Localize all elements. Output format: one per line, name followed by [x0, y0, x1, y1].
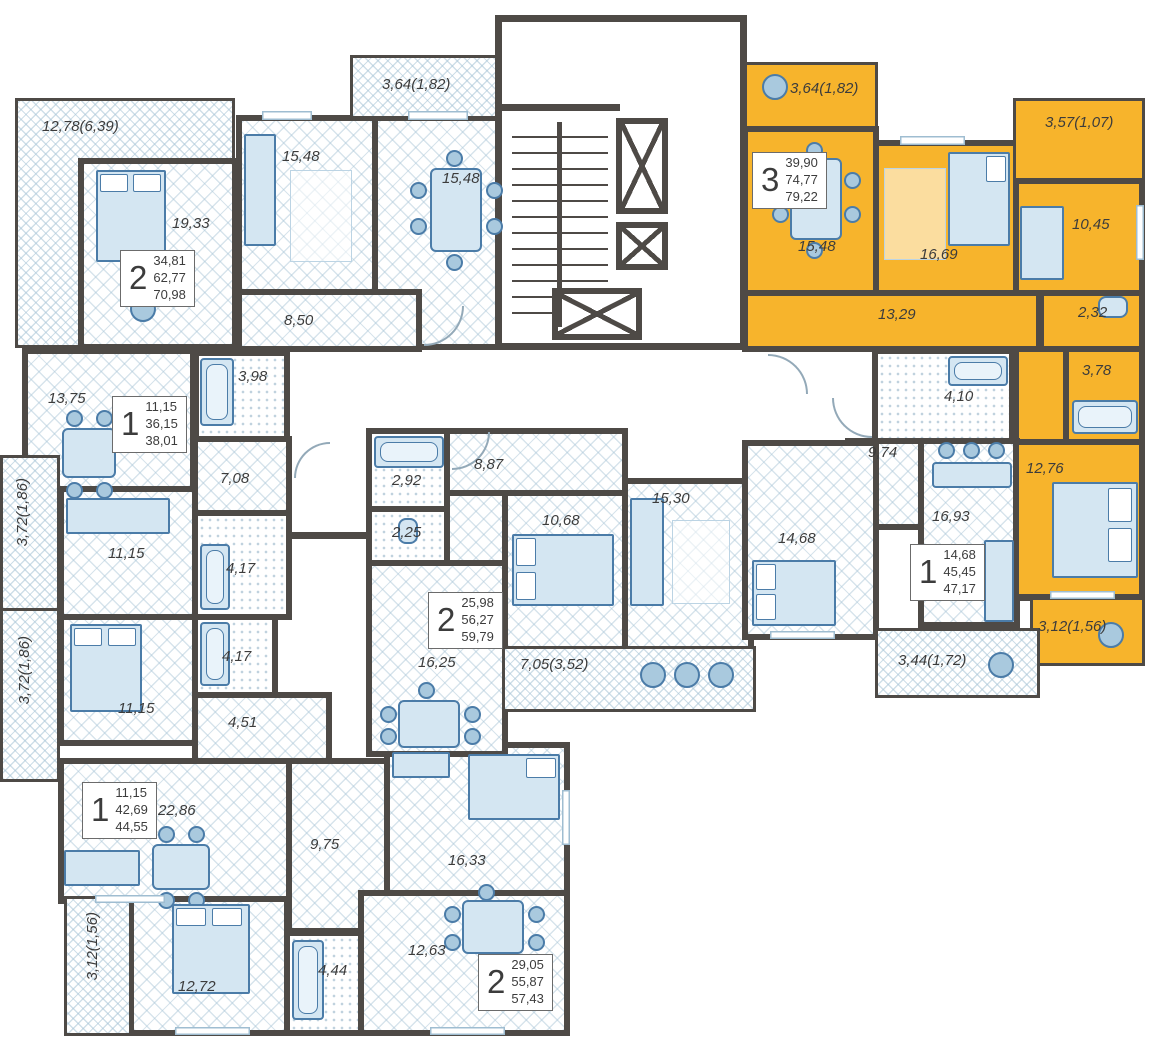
bathtub [292, 940, 324, 1020]
chair [410, 182, 427, 199]
elevator-shaft-1 [616, 118, 668, 214]
chair [418, 682, 435, 699]
room-label: 9,74 [868, 444, 897, 461]
room-b-balcony-right [1013, 98, 1145, 184]
window [562, 790, 570, 845]
stair-divider [557, 122, 562, 327]
rug [290, 170, 352, 262]
room-label: 4,17 [226, 560, 255, 577]
area-full: 47,17 [943, 581, 976, 598]
chair [844, 206, 861, 223]
room-label: 3,98 [238, 368, 267, 385]
room-label: 9,75 [310, 836, 339, 853]
room-label: 4,44 [318, 962, 347, 979]
room-label: 13,29 [878, 306, 916, 323]
window [175, 1027, 250, 1035]
room-label: 12,76 [1026, 460, 1064, 477]
area-total: 62,77 [153, 270, 186, 287]
apartment-tag-f: 2 25,98 56,27 59,79 [428, 592, 503, 649]
room-label: 19,33 [172, 215, 210, 232]
stool [938, 442, 955, 459]
sofa [630, 498, 664, 606]
room-label: 4,10 [944, 388, 973, 405]
room-label: 3,64(1,82) [790, 80, 858, 97]
room-label: 15,48 [442, 170, 480, 187]
area-total: 45,45 [943, 564, 976, 581]
window [408, 111, 468, 120]
pillow [1108, 488, 1132, 522]
wall-segment [502, 104, 620, 111]
room-label: 2,25 [392, 524, 421, 541]
sofa [244, 134, 276, 246]
room-label: 15,30 [652, 490, 690, 507]
area-full: 44,55 [115, 819, 148, 836]
area-full: 59,79 [461, 629, 494, 646]
window [430, 1027, 505, 1035]
chair [844, 172, 861, 189]
apartment-tag-e: 2 29,05 55,87 57,43 [478, 954, 553, 1011]
apartment-tag-g: 1 14,68 45,45 47,17 [910, 544, 985, 601]
room-label: 15,48 [798, 238, 836, 255]
bathtub [200, 358, 234, 426]
kitchen-island [932, 462, 1012, 488]
chair [96, 482, 113, 499]
pillow [756, 594, 776, 620]
pillow [133, 174, 161, 192]
window [95, 895, 165, 903]
room-label: 3,44(1,72) [898, 652, 966, 669]
pillow [756, 564, 776, 590]
area-living: 11,15 [115, 785, 148, 802]
room-label: 4,17 [222, 648, 251, 665]
lounge-chair [674, 662, 700, 688]
sofa [66, 498, 170, 534]
chair [444, 934, 461, 951]
pillow [516, 538, 536, 566]
chair [478, 884, 495, 901]
chair [380, 728, 397, 745]
pillow [526, 758, 556, 778]
chair [380, 706, 397, 723]
room-label: 8,50 [284, 312, 313, 329]
chair [528, 934, 545, 951]
rooms-count: 1 [91, 791, 109, 829]
room-label: 12,78(6,39) [42, 118, 119, 135]
room-b-wc [1038, 290, 1145, 352]
room-label: 3,64(1,82) [382, 76, 450, 93]
sofa [1020, 206, 1064, 280]
rooms-count: 1 [121, 405, 139, 443]
room-b-balcony-top [742, 62, 878, 132]
dining-table [398, 700, 460, 748]
room-label: 16,33 [448, 852, 486, 869]
chair [444, 906, 461, 923]
area-full: 38,01 [145, 433, 178, 450]
area-living: 11,15 [145, 399, 178, 416]
rooms-count: 1 [919, 553, 937, 591]
area-total: 36,15 [145, 416, 178, 433]
room-label: 8,87 [474, 456, 503, 473]
common-corridor [288, 350, 744, 430]
window [1050, 591, 1115, 599]
floor-plan: 12,78(6,39) 19,33 15,48 15,48 3,64(1,82)… [0, 0, 1150, 1040]
elevator-shaft-2 [616, 222, 668, 270]
area-living: 14,68 [943, 547, 976, 564]
area-full: 79,22 [785, 189, 818, 206]
pillow [986, 156, 1006, 182]
area-living: 39,90 [785, 155, 818, 172]
desk [392, 752, 450, 778]
rooms-count: 3 [761, 161, 779, 199]
pillow [1108, 528, 1132, 562]
rug [672, 520, 730, 604]
apartment-tag-d: 1 11,15 42,69 44,55 [82, 782, 157, 839]
window [262, 111, 312, 120]
room-label: 3,72(1,86) [16, 636, 33, 704]
rooms-count: 2 [487, 963, 505, 1001]
room-label: 3,72(1,86) [14, 478, 31, 546]
area-living: 25,98 [461, 595, 494, 612]
chair [188, 826, 205, 843]
room-label: 7,05(3,52) [520, 656, 588, 673]
chair [486, 182, 503, 199]
chair [464, 728, 481, 745]
window [770, 631, 835, 639]
pillow [74, 628, 102, 646]
room-label: 16,69 [920, 246, 958, 263]
room-label: 11,15 [108, 545, 144, 562]
room-label: 4,51 [228, 714, 257, 731]
room-label: 3,57(1,07) [1045, 114, 1113, 131]
sofa [984, 540, 1014, 622]
pillow [516, 572, 536, 600]
rooms-count: 2 [129, 259, 147, 297]
room-label: 3,12(1,56) [1038, 618, 1106, 635]
pillow [176, 908, 206, 926]
chair [528, 906, 545, 923]
chair [410, 218, 427, 235]
pillow [100, 174, 128, 192]
area-total: 74,77 [785, 172, 818, 189]
apartment-tag-b: 3 39,90 74,77 79,22 [752, 152, 827, 209]
wall-segment [288, 532, 366, 539]
room-d-hall [192, 692, 332, 764]
room-label: 12,72 [178, 978, 216, 995]
dining-table [152, 844, 210, 890]
washbasin [762, 74, 788, 100]
room-label: 16,93 [932, 508, 970, 525]
pillow [108, 628, 136, 646]
stool [963, 442, 980, 459]
window [900, 136, 965, 145]
apartment-tag-c: 1 11,15 36,15 38,01 [112, 396, 187, 453]
area-total: 56,27 [461, 612, 494, 629]
ac-unit-icon [988, 652, 1014, 678]
room-label: 14,68 [778, 530, 816, 547]
pillow [212, 908, 242, 926]
room-label: 13,75 [48, 390, 86, 407]
dining-table [462, 900, 524, 954]
rooms-count: 2 [437, 601, 455, 639]
window [1136, 205, 1144, 260]
chair [66, 410, 83, 427]
room-a-hall [236, 289, 422, 352]
bathtub [374, 436, 444, 468]
lounge-chair [640, 662, 666, 688]
area-full: 57,43 [511, 991, 544, 1008]
chair [446, 254, 463, 271]
area-living: 34,81 [153, 253, 186, 270]
chair [66, 482, 83, 499]
chair [158, 826, 175, 843]
room-label: 2,32 [1078, 304, 1107, 321]
stool [988, 442, 1005, 459]
room-label: 10,45 [1072, 216, 1110, 233]
area-living: 29,05 [511, 957, 544, 974]
room-label: 7,08 [220, 470, 249, 487]
area-full: 70,98 [153, 287, 186, 304]
room-label: 3,12(1,56) [84, 912, 101, 980]
room-label: 10,68 [542, 512, 580, 529]
room-label: 15,48 [282, 148, 320, 165]
apartment-tag-a: 2 34,81 62,77 70,98 [120, 250, 195, 307]
dining-table [62, 428, 116, 478]
room-f-hall-leg [444, 490, 508, 570]
chair [96, 410, 113, 427]
sofa [64, 850, 140, 886]
room-label: 11,15 [118, 700, 154, 717]
bathtub [200, 544, 230, 610]
area-total: 55,87 [511, 974, 544, 991]
bathtub [948, 356, 1008, 386]
chair [486, 218, 503, 235]
room-label: 12,63 [408, 942, 446, 959]
area-total: 42,69 [115, 802, 148, 819]
lounge-chair [708, 662, 734, 688]
service-shaft [552, 288, 642, 340]
chair [464, 706, 481, 723]
chair [446, 150, 463, 167]
room-label: 2,92 [392, 472, 421, 489]
room-label: 3,78 [1082, 362, 1111, 379]
room-label: 16,25 [418, 654, 456, 671]
room-label: 22,86 [158, 802, 196, 819]
bathtub [1072, 400, 1138, 434]
